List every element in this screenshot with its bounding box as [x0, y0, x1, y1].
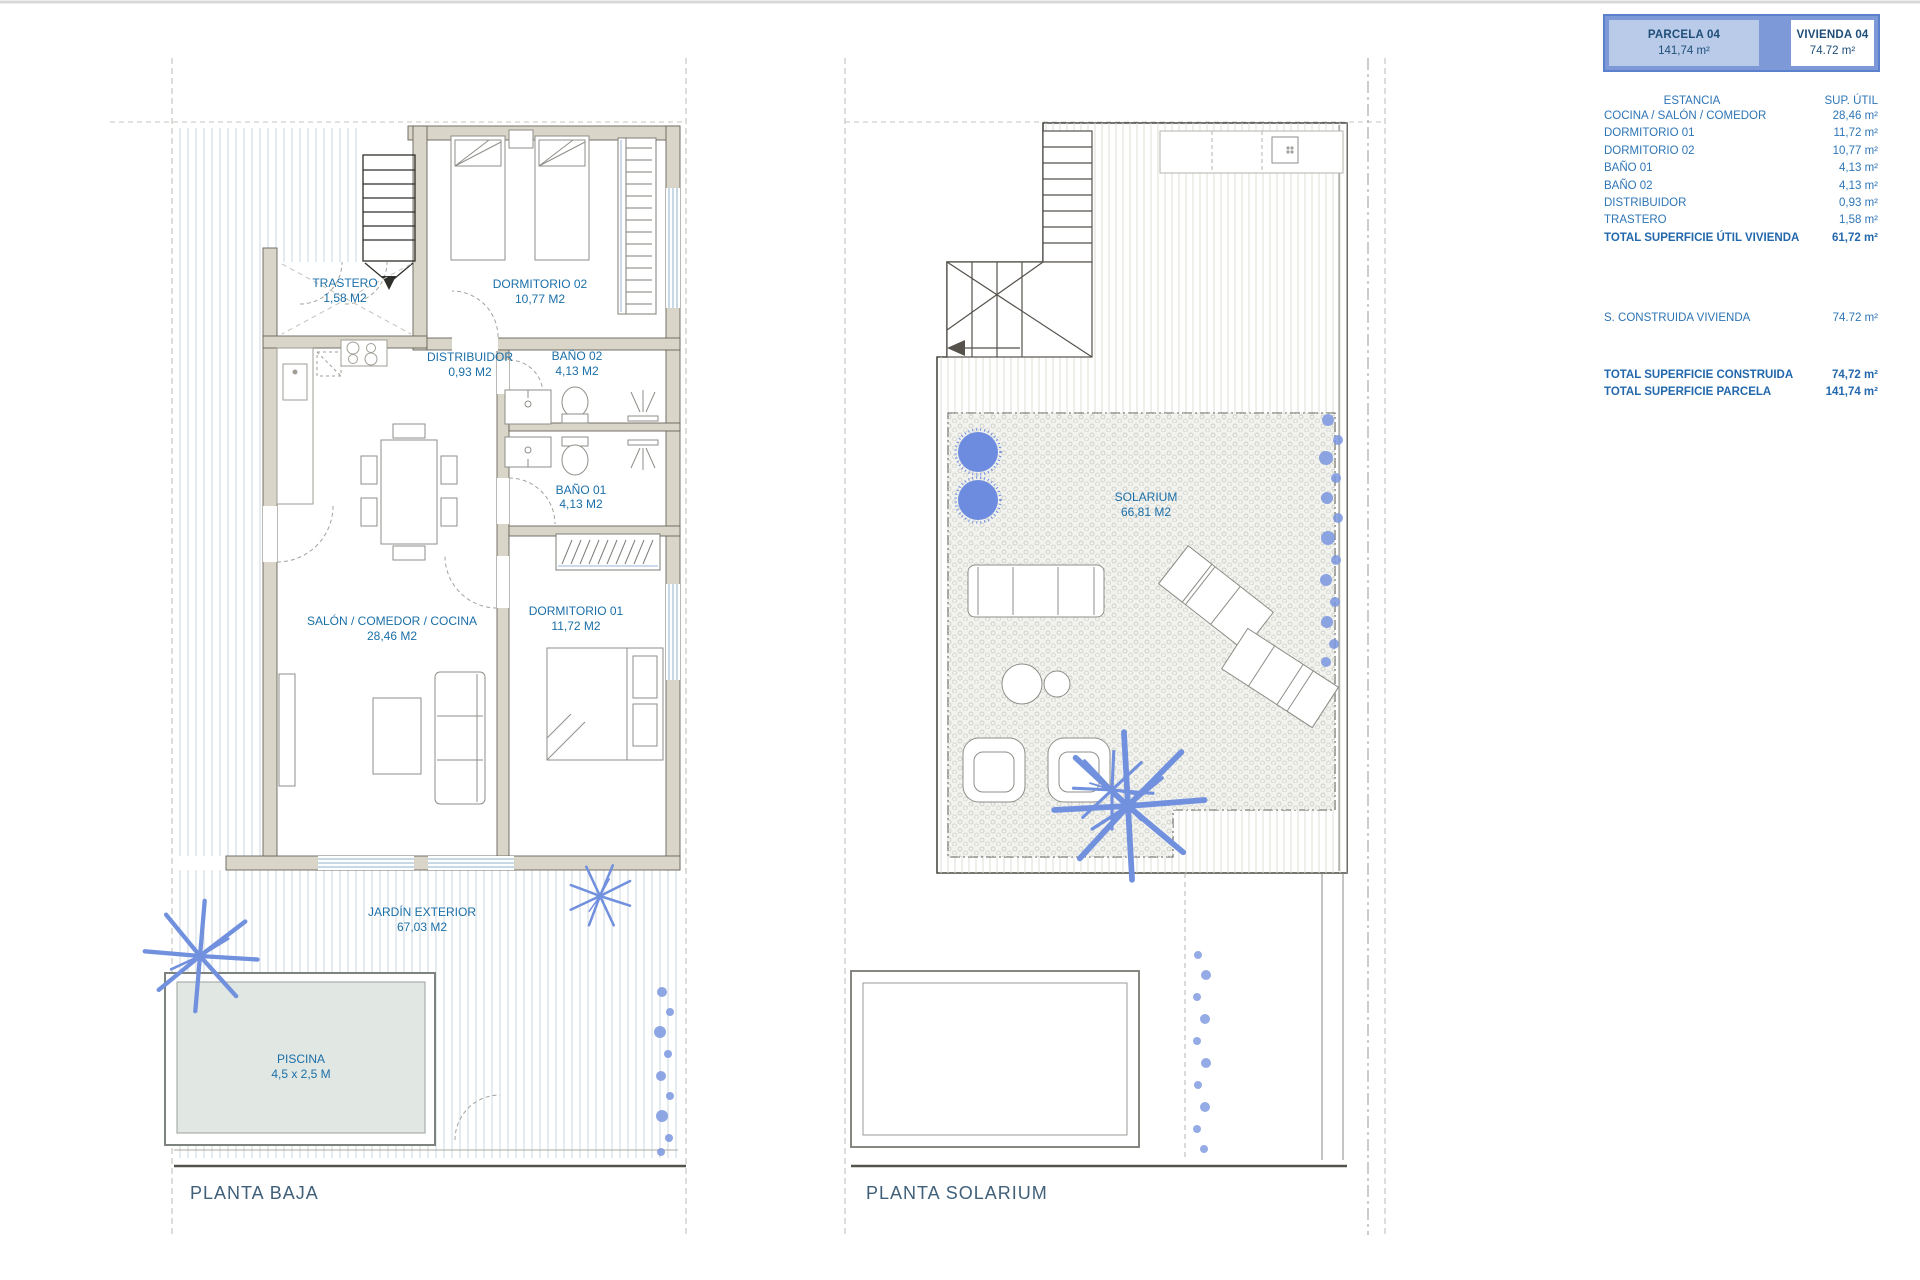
- summary-row: DORMITORIO 02 10,77 m²: [1603, 143, 1880, 160]
- roof-ground-level: [851, 873, 1347, 1166]
- room-area-jardin: 67,03 M2: [397, 920, 447, 934]
- plan-title-baja: PLANTA BAJA: [190, 1183, 319, 1203]
- row-value: 28,46 m²: [1833, 108, 1878, 125]
- row-value: 10,77 m²: [1833, 143, 1878, 160]
- row-label: TOTAL SUPERFICIE PARCELA: [1604, 384, 1771, 401]
- room-area-bano01: 4,13 M2: [559, 497, 603, 511]
- row-label: TRASTERO: [1604, 212, 1667, 229]
- staircase: [363, 155, 415, 290]
- room-label-solarium: SOLARIUM: [1115, 490, 1178, 504]
- bathroom02-fixtures: [505, 387, 658, 424]
- spacer: [1603, 328, 1880, 367]
- room-area-dormitorio01: 11,72 M2: [551, 619, 600, 633]
- room-area-distribuidor: 0,93 M2: [448, 365, 492, 379]
- row-label: DORMITORIO 01: [1604, 125, 1695, 142]
- dining-table: [361, 424, 457, 560]
- room-label-trastero: TRASTERO: [312, 276, 377, 290]
- room-label-piscina: PISCINA: [277, 1052, 325, 1066]
- total-construida-row: TOTAL SUPERFICIE CONSTRUIDA 74,72 m²: [1603, 367, 1880, 384]
- row-value: 74,72 m²: [1832, 367, 1878, 384]
- spacer: [1603, 247, 1880, 310]
- room-label-jardin: JARDÍN EXTERIOR: [368, 904, 476, 919]
- salon-furniture: [279, 672, 485, 804]
- header-spacer: [1759, 20, 1791, 66]
- summary-column-headers: ESTANCIA SUP. ÚTIL: [1603, 94, 1880, 108]
- room-label-distribuidor: DISTRIBUIDOR: [427, 350, 513, 364]
- row-value: 4,13 m²: [1839, 160, 1878, 177]
- plant-strip-icon: [1193, 951, 1211, 1153]
- total-util-row: TOTAL SUPERFICIE ÚTIL VIVIENDA 61,72 m²: [1603, 230, 1880, 247]
- wardrobe-dormitorio01: [556, 534, 660, 570]
- row-label: BAÑO 01: [1604, 160, 1653, 177]
- armchair: [1048, 738, 1110, 802]
- coffee-table: [373, 698, 421, 774]
- row-label: BAÑO 02: [1604, 178, 1653, 195]
- tv-sideboard: [279, 674, 295, 786]
- closet-dormitorio02: [618, 138, 656, 314]
- parcela-value: 141,74 m²: [1658, 45, 1710, 57]
- row-value: 141,74 m²: [1826, 384, 1878, 401]
- row-label: DORMITORIO 02: [1604, 143, 1695, 160]
- round-table: [1002, 664, 1042, 704]
- row-label: TOTAL SUPERFICIE CONSTRUIDA: [1604, 367, 1793, 384]
- summary-row: COCINA / SALÓN / COMEDOR 28,46 m²: [1603, 108, 1880, 125]
- row-value: 11,72 m²: [1833, 125, 1878, 142]
- summary-row: TRASTERO 1,58 m²: [1603, 212, 1880, 229]
- summary-row: BAÑO 01 4,13 m²: [1603, 160, 1880, 177]
- drawing-sheet: TRASTERO 1,58 M2 DORMITORIO 02 10,77 M2 …: [0, 0, 1920, 1280]
- row-label: S. CONSTRUIDA VIVIENDA: [1604, 310, 1750, 327]
- room-area-piscina: 4,5 x 2,5 M: [271, 1067, 330, 1081]
- total-parcela-row: TOTAL SUPERFICIE PARCELA 141,74 m²: [1603, 384, 1880, 401]
- outdoor-sofa: [968, 565, 1104, 617]
- room-label-dormitorio01: DORMITORIO 01: [529, 604, 624, 618]
- round-table-small: [1044, 671, 1070, 697]
- bed-dormitorio02-b: [535, 136, 589, 260]
- vivienda-label: VIVIENDA 04: [1796, 29, 1868, 41]
- room-area-solarium: 66,81 M2: [1121, 505, 1171, 519]
- room-label-dormitorio02: DORMITORIO 02: [493, 277, 588, 291]
- row-value: 74.72 m²: [1833, 310, 1878, 327]
- plan-planta-solarium: SOLARIUM 66,81 M2 PLANTA SOLARIUM: [851, 123, 1347, 1203]
- row-value: 4,13 m²: [1839, 178, 1878, 195]
- room-area-trastero: 1,58 M2: [323, 291, 367, 305]
- summary-row: DORMITORIO 01 11,72 m²: [1603, 125, 1880, 142]
- plan-planta-baja: TRASTERO 1,58 M2 DORMITORIO 02 10,77 M2 …: [132, 126, 686, 1203]
- parcel-header-box: PARCELA 04 141,74 m² VIVIENDA 04 74.72 m…: [1603, 14, 1880, 72]
- col-estancia: ESTANCIA: [1603, 94, 1781, 108]
- parcela-label: PARCELA 04: [1648, 29, 1720, 41]
- col-sup-util: SUP. ÚTIL: [1781, 94, 1880, 108]
- parcela-cell: PARCELA 04 141,74 m²: [1609, 20, 1759, 66]
- plan-title-solarium: PLANTA SOLARIUM: [866, 1183, 1048, 1203]
- area-summary-panel: PARCELA 04 141,74 m² VIVIENDA 04 74.72 m…: [1603, 14, 1880, 401]
- room-label-bano02: BAÑO 02: [552, 349, 603, 363]
- row-label: TOTAL SUPERFICIE ÚTIL VIVIENDA: [1604, 230, 1799, 247]
- vivienda-value: 74.72 m²: [1810, 45, 1855, 57]
- row-value: 61,72 m²: [1832, 230, 1878, 247]
- roof-staircase: [947, 131, 1092, 357]
- room-label-bano01: BAÑO 01: [556, 483, 607, 497]
- room-area-salon: 28,46 M2: [367, 629, 417, 643]
- armchair: [963, 738, 1025, 802]
- summary-row: DISTRIBUIDOR 0,93 m²: [1603, 195, 1880, 212]
- bathroom01-fixtures: [505, 437, 658, 475]
- room-area-dormitorio02: 10,77 M2: [515, 292, 565, 306]
- bed-dormitorio01: [547, 648, 663, 760]
- row-label: COCINA / SALÓN / COMEDOR: [1604, 108, 1766, 125]
- vivienda-cell: VIVIENDA 04 74.72 m²: [1791, 20, 1874, 66]
- room-label-salon: SALÓN / COMEDOR / COCINA: [307, 613, 477, 628]
- roof-counter: [1160, 131, 1343, 173]
- row-value: 1,58 m²: [1839, 212, 1878, 229]
- nightstand: [509, 130, 533, 148]
- construida-row: S. CONSTRUIDA VIVIENDA 74.72 m²: [1603, 310, 1880, 327]
- room-area-bano02: 4,13 M2: [555, 364, 599, 378]
- summary-row: BAÑO 02 4,13 m²: [1603, 178, 1880, 195]
- row-label: DISTRIBUIDOR: [1604, 195, 1686, 212]
- bed-dormitorio02-a: [451, 136, 505, 260]
- row-value: 0,93 m²: [1839, 195, 1878, 212]
